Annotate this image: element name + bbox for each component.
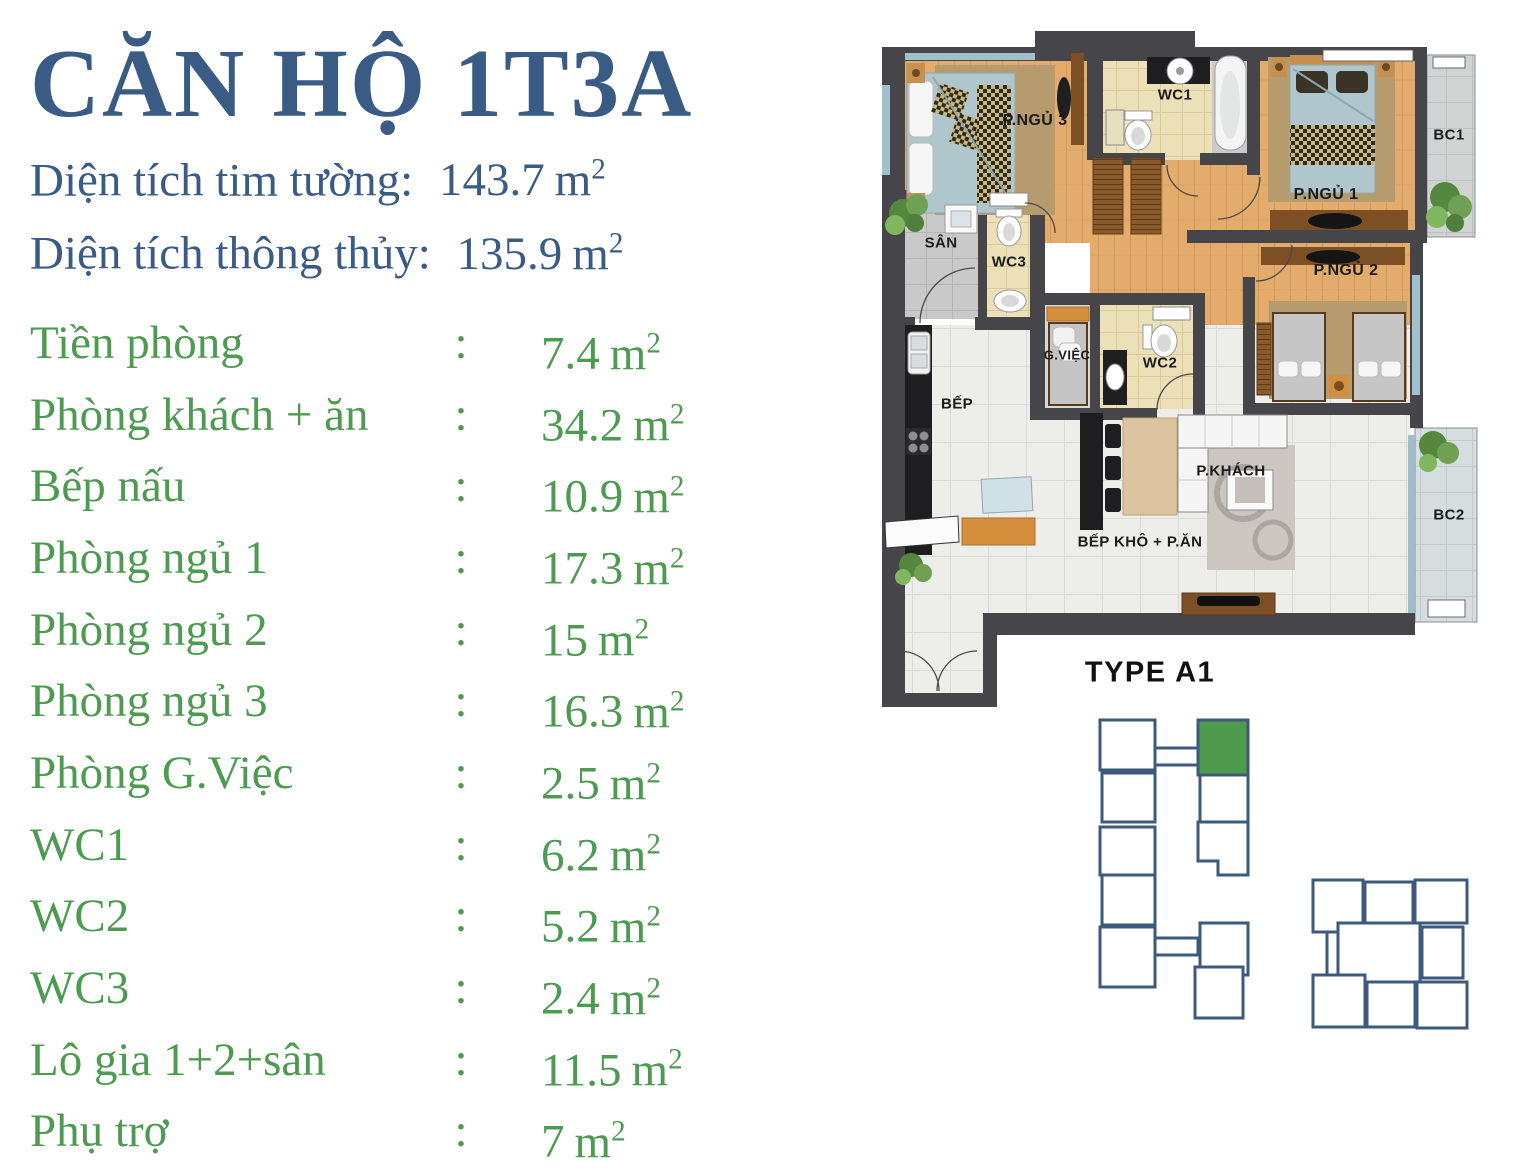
unit: m2 bbox=[572, 228, 623, 280]
colon-separator: : bbox=[453, 671, 469, 743]
colon-separator: : bbox=[453, 600, 469, 672]
area-row: WC1 : 6.2m2 bbox=[30, 815, 860, 887]
unit: m2 bbox=[610, 829, 661, 881]
keyplan-building-right bbox=[1313, 880, 1467, 1028]
gross-area-label: Diện tích tim tường: bbox=[30, 154, 413, 206]
area-row: Lô gia 1+2+sân : 11.5m2 bbox=[30, 1030, 860, 1102]
colon-separator: : bbox=[453, 958, 469, 1030]
room-area-value: 7m2 bbox=[541, 1101, 626, 1173]
room-name: Phụ trợ bbox=[30, 1101, 453, 1173]
room-area-list: Tiền phòng : 7.4m2 Phòng khách + ăn : 34… bbox=[30, 313, 860, 1173]
room-area-value: 17.3m2 bbox=[541, 528, 684, 600]
area-row: Phòng ngủ 2 : 15m2 bbox=[30, 600, 860, 672]
colon-separator: : bbox=[453, 886, 469, 958]
room-area-value: 16.3m2 bbox=[541, 671, 684, 743]
type-label: TYPE A1 bbox=[1085, 657, 1215, 690]
colon-separator: : bbox=[453, 743, 469, 815]
area-row: Bếp nấu : 10.9m2 bbox=[30, 456, 860, 528]
gross-area-line: Diện tích tim tường: 143.7m2 bbox=[30, 139, 860, 213]
colon-separator: : bbox=[453, 815, 469, 887]
room-name: Phòng ngủ 2 bbox=[30, 600, 453, 672]
room-area-value: 10.9m2 bbox=[541, 456, 684, 528]
net-area-line: Diện tích thông thủy: 135.9m2 bbox=[30, 212, 860, 286]
room-area-value: 6.2m2 bbox=[541, 815, 661, 887]
room-name: Tiền phòng bbox=[30, 313, 453, 385]
unit: m2 bbox=[633, 686, 684, 738]
room-area-value: 11.5m2 bbox=[541, 1030, 683, 1102]
room-name: WC2 bbox=[30, 886, 453, 958]
room-area-value: 5.2m2 bbox=[541, 886, 661, 958]
room-area-value: 2.4m2 bbox=[541, 958, 661, 1030]
area-row: Phụ trợ : 7m2 bbox=[30, 1101, 860, 1173]
keyplan bbox=[1080, 712, 1480, 1042]
colon-separator: : bbox=[453, 385, 469, 457]
unit: m2 bbox=[633, 399, 684, 451]
colon-separator: : bbox=[453, 1101, 469, 1173]
unit: m2 bbox=[575, 1116, 626, 1168]
floorplan-sheet: { "header": { "title": "CĂN HỘ 1T3A", "a… bbox=[0, 0, 1536, 1082]
room-area-value: 15m2 bbox=[541, 600, 649, 672]
unit: m2 bbox=[632, 1044, 683, 1096]
room-name: WC1 bbox=[30, 815, 453, 887]
area-row: Phòng khách + ăn : 34.2m2 bbox=[30, 385, 860, 457]
room-label-san: SÂN bbox=[925, 235, 958, 252]
unit: m2 bbox=[610, 758, 661, 810]
area-row: Phòng ngủ 3 : 16.3m2 bbox=[30, 671, 860, 743]
area-row: WC2 : 5.2m2 bbox=[30, 886, 860, 958]
room-label-pngu2: P.NGỦ 2 bbox=[1314, 262, 1379, 280]
room-name: Phòng ngủ 1 bbox=[30, 528, 453, 600]
room-name: Phòng G.Việc bbox=[30, 743, 453, 815]
room-label-gviec: G.VIỆC bbox=[1044, 348, 1090, 363]
room-name: Lô gia 1+2+sân bbox=[30, 1030, 453, 1102]
room-name: Phòng khách + ăn bbox=[30, 385, 453, 457]
colon-separator: : bbox=[453, 456, 469, 528]
colon-separator: : bbox=[453, 528, 469, 600]
keyplan-drawing bbox=[1080, 712, 1480, 1042]
net-area-label: Diện tích thông thủy: bbox=[30, 228, 431, 280]
room-name: WC3 bbox=[30, 958, 453, 1030]
unit: m2 bbox=[633, 543, 684, 595]
room-area-value: 34.2m2 bbox=[541, 385, 684, 457]
gross-area-value: 143.7 bbox=[439, 154, 545, 206]
summary-panel: CĂN HỘ 1T3A Diện tích tim tường: 143.7m2… bbox=[30, 0, 860, 1173]
area-row: WC3 : 2.4m2 bbox=[30, 958, 860, 1030]
room-name: Phòng ngủ 3 bbox=[30, 671, 453, 743]
room-label-bep-kho: BẾP KHÔ + P.ĂN bbox=[1078, 534, 1203, 551]
room-label-bc1: BC1 bbox=[1433, 127, 1464, 144]
area-row: Tiền phòng : 7.4m2 bbox=[30, 313, 860, 385]
area-row: Phòng G.Việc : 2.5m2 bbox=[30, 743, 860, 815]
net-area-value: 135.9 bbox=[457, 228, 563, 280]
room-label-pngu3: P.NGỦ 3 bbox=[1003, 112, 1068, 130]
room-label-wc3: WC3 bbox=[992, 254, 1027, 271]
unit: m2 bbox=[610, 328, 661, 380]
room-label-bep: BẾP bbox=[941, 396, 973, 413]
unit: m2 bbox=[610, 901, 661, 953]
room-area-value: 2.5m2 bbox=[541, 743, 661, 815]
colon-separator: : bbox=[453, 1030, 469, 1102]
room-name: Bếp nấu bbox=[30, 456, 453, 528]
room-label-wc2: WC2 bbox=[1143, 355, 1178, 372]
area-row: Phòng ngủ 1 : 17.3m2 bbox=[30, 528, 860, 600]
keyplan-highlight-unit bbox=[1198, 720, 1248, 775]
unit: m2 bbox=[610, 973, 661, 1025]
room-label-pkhach: P.KHÁCH bbox=[1196, 463, 1265, 480]
unit: m2 bbox=[598, 614, 649, 666]
colon-separator: : bbox=[453, 313, 469, 385]
room-label-pngu1: P.NGỦ 1 bbox=[1294, 186, 1359, 204]
page-title: CĂN HỘ 1T3A bbox=[30, 30, 860, 139]
floorplan: P.NGỦ 3 WC1 P.NGỦ 1 BC1 SÂN WC3 P.NGỦ 2 … bbox=[875, 25, 1536, 720]
room-label-bc2: BC2 bbox=[1433, 507, 1464, 524]
keyplan-building-left bbox=[1100, 720, 1248, 1018]
room-area-value: 7.4m2 bbox=[541, 313, 661, 385]
unit: m2 bbox=[633, 471, 684, 523]
room-label-wc1: WC1 bbox=[1158, 87, 1193, 104]
unit: m2 bbox=[555, 154, 606, 206]
